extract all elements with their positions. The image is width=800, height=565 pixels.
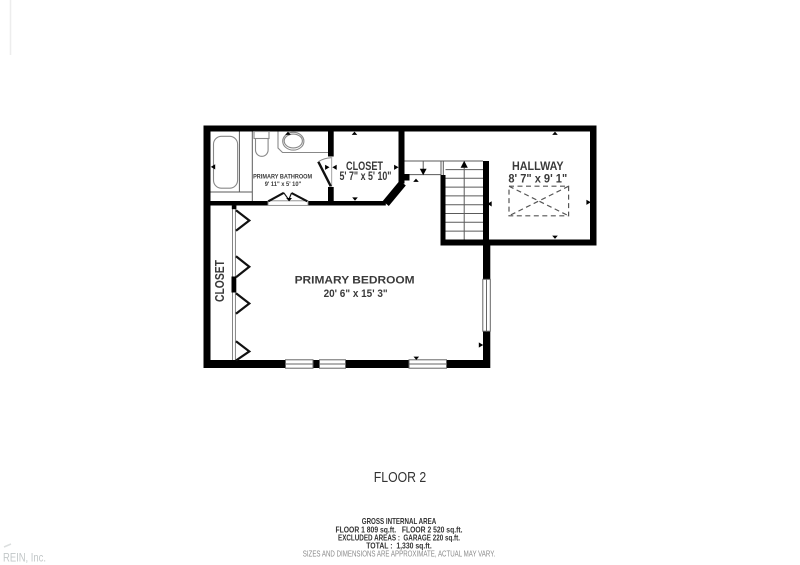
- svg-text:PRIMARY BEDROOM: PRIMARY BEDROOM: [295, 274, 415, 286]
- svg-text:HALLWAY: HALLWAY: [512, 159, 564, 173]
- svg-text:PRIMARY BATHROOM: PRIMARY BATHROOM: [253, 174, 312, 181]
- svg-text:9' 11" x 5' 10": 9' 11" x 5' 10": [265, 181, 302, 188]
- svg-text:8' 7" x 9' 1": 8' 7" x 9' 1": [508, 173, 567, 185]
- svg-text:SIZES AND DIMENSIONS ARE APPRO: SIZES AND DIMENSIONS ARE APPROXIMATE, AC…: [303, 548, 496, 558]
- svg-text:20' 6" x 15' 3": 20' 6" x 15' 3": [324, 288, 388, 300]
- svg-text:REIN, Inc.: REIN, Inc.: [3, 553, 46, 565]
- svg-text:5' 7" x 5' 10": 5' 7" x 5' 10": [340, 171, 392, 183]
- svg-text:FLOOR 2: FLOOR 2: [374, 469, 427, 486]
- svg-text:CLOSET: CLOSET: [212, 260, 227, 302]
